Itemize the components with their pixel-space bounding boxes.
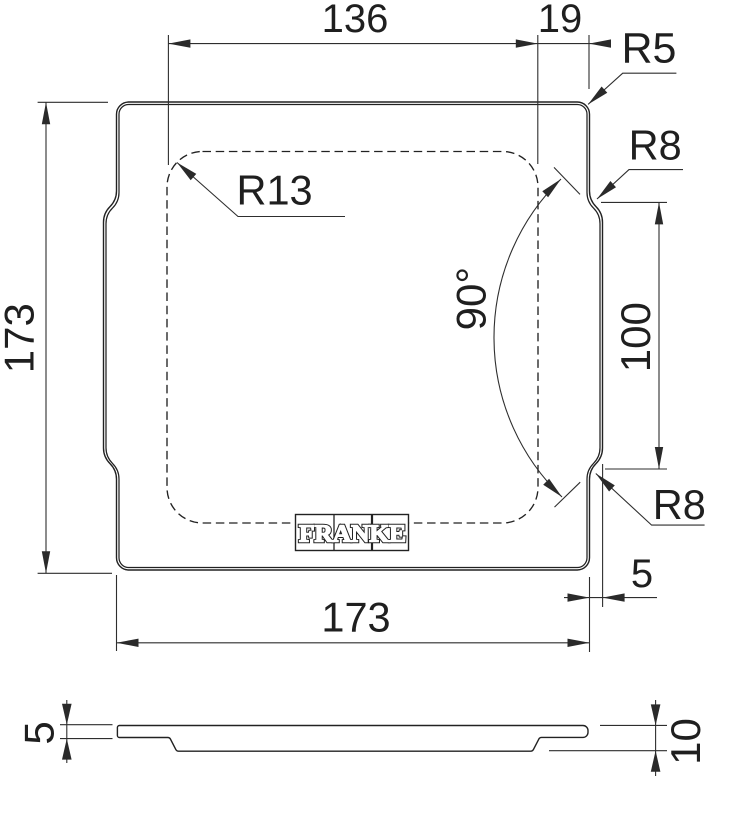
svg-text:100: 100 xyxy=(612,302,659,372)
svg-text:R8: R8 xyxy=(653,481,706,528)
svg-text:5: 5 xyxy=(16,721,63,744)
svg-text:19: 19 xyxy=(538,0,583,41)
svg-text:R13: R13 xyxy=(237,167,313,214)
svg-text:FRANKE: FRANKE xyxy=(299,521,406,548)
svg-text:173: 173 xyxy=(0,303,42,373)
svg-text:10: 10 xyxy=(662,718,709,765)
svg-text:R8: R8 xyxy=(629,122,682,169)
svg-text:R5: R5 xyxy=(622,25,677,73)
svg-text:136: 136 xyxy=(322,0,389,41)
svg-text:5: 5 xyxy=(631,552,653,596)
svg-text:90°: 90° xyxy=(448,267,495,331)
svg-text:173: 173 xyxy=(321,594,390,641)
